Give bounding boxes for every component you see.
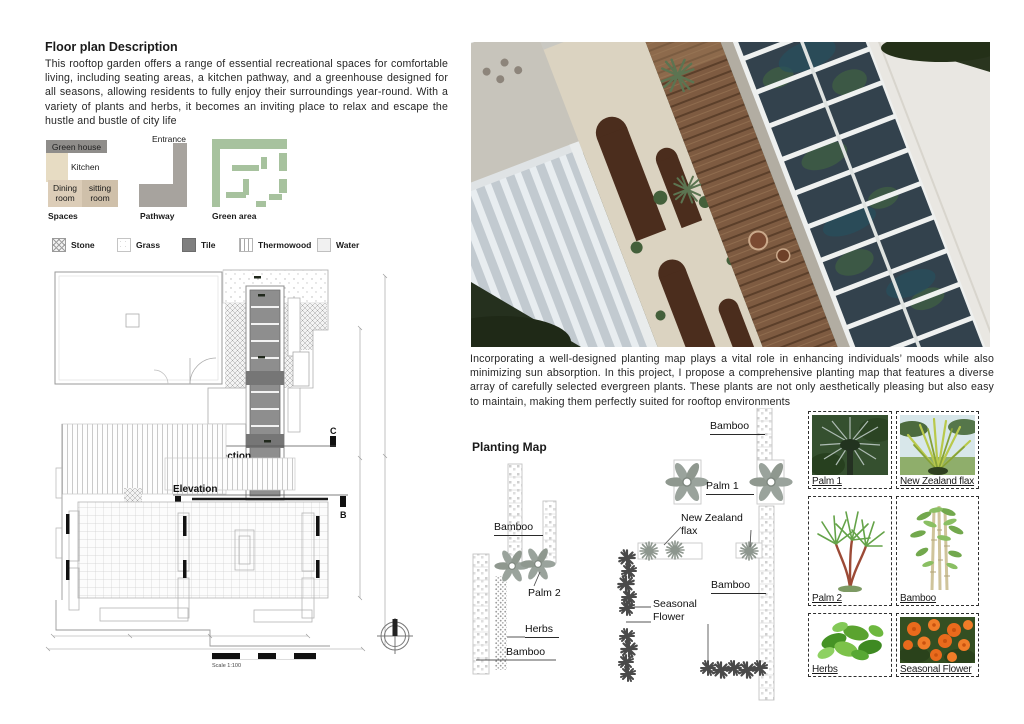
- grass-swatch: [117, 238, 131, 252]
- scale-bar: Scale 1:100: [212, 653, 316, 669]
- planting-map-drawing: [468, 408, 808, 708]
- material-stone: Stone: [52, 237, 95, 252]
- legend-dining-room: Dining room: [48, 180, 82, 207]
- material-thermowood: Thermowood: [239, 237, 311, 252]
- floor-plan-drawing: C C Section Elevation B B: [40, 268, 435, 688]
- map-label-bamboo-top: Bamboo: [710, 420, 765, 435]
- map-label-seasonal-flower: Seasonal Flower: [653, 598, 713, 623]
- legend-green-house: Green house: [46, 140, 107, 153]
- material-water: Water: [317, 237, 359, 252]
- legend-kitchen-swatch: [46, 153, 68, 182]
- map-label-bamboo-left: Bamboo: [494, 521, 543, 536]
- bamboo-photo: [900, 500, 975, 592]
- pathway-shape-vertical: [173, 143, 187, 184]
- palm1-photo: [812, 415, 888, 475]
- planting-paragraph: Incorporating a well-designed planting m…: [470, 352, 994, 409]
- svg-text:Elevation: Elevation: [173, 484, 217, 495]
- palm2-photo: [812, 500, 888, 592]
- rooftop-render-image: [471, 42, 990, 347]
- thermowood-swatch: [239, 238, 253, 252]
- material-grass: Grass: [117, 237, 160, 252]
- seasonal-flower-photo: [900, 617, 975, 663]
- plant-card-palm1: Palm 1: [808, 411, 892, 489]
- spaces-caption: Spaces: [48, 211, 78, 221]
- water-swatch: [317, 238, 331, 252]
- floor-plan-description: This rooftop garden offers a range of es…: [45, 57, 448, 128]
- svg-text:Scale 1:100: Scale 1:100: [212, 663, 241, 669]
- plant-card-palm2: Palm 2: [808, 496, 892, 606]
- herbs-photo: [812, 617, 888, 663]
- plan-greenhouse-room: [55, 272, 222, 384]
- plant-card-nz-flax: New Zealand flax: [896, 411, 979, 489]
- presentation-board: Floor plan Description This rooftop gard…: [0, 0, 1024, 724]
- green-area-caption: Green area: [212, 211, 256, 221]
- plan-courtyard-grid: [78, 502, 328, 598]
- map-label-palm2: Palm 2: [528, 587, 561, 600]
- nz-flax-photo: [900, 415, 975, 475]
- map-label-palm1: Palm 1: [706, 480, 754, 495]
- map-label-bamboo-right: Bamboo: [711, 579, 766, 594]
- green-area-plan-shape: [212, 139, 287, 207]
- map-label-herbs: Herbs: [525, 623, 559, 638]
- svg-text:B: B: [340, 510, 347, 520]
- compass-icon: [377, 618, 413, 654]
- plant-card-seasonal-flower: Seasonal Flower: [896, 613, 979, 677]
- stone-swatch: [52, 238, 66, 252]
- pathway-shape-horizontal: [139, 184, 187, 207]
- legend-sitting-room: sitting room: [82, 180, 118, 207]
- material-tile: Tile: [182, 237, 216, 252]
- tile-swatch: [182, 238, 196, 252]
- plant-card-bamboo: Bamboo: [896, 496, 979, 606]
- legend-kitchen-label: Kitchen: [71, 162, 99, 172]
- planting-map: Bamboo Palm 2 Herbs Bamboo Bamboo Palm 1…: [468, 408, 808, 708]
- map-label-nz-flax: New Zealand flax: [681, 512, 761, 537]
- map-label-bamboo-bottom: Bamboo: [506, 646, 545, 659]
- plant-card-herbs: Herbs: [808, 613, 892, 677]
- svg-text:C: C: [330, 426, 337, 436]
- pathway-caption: Pathway: [140, 211, 175, 221]
- page-title: Floor plan Description: [45, 40, 178, 54]
